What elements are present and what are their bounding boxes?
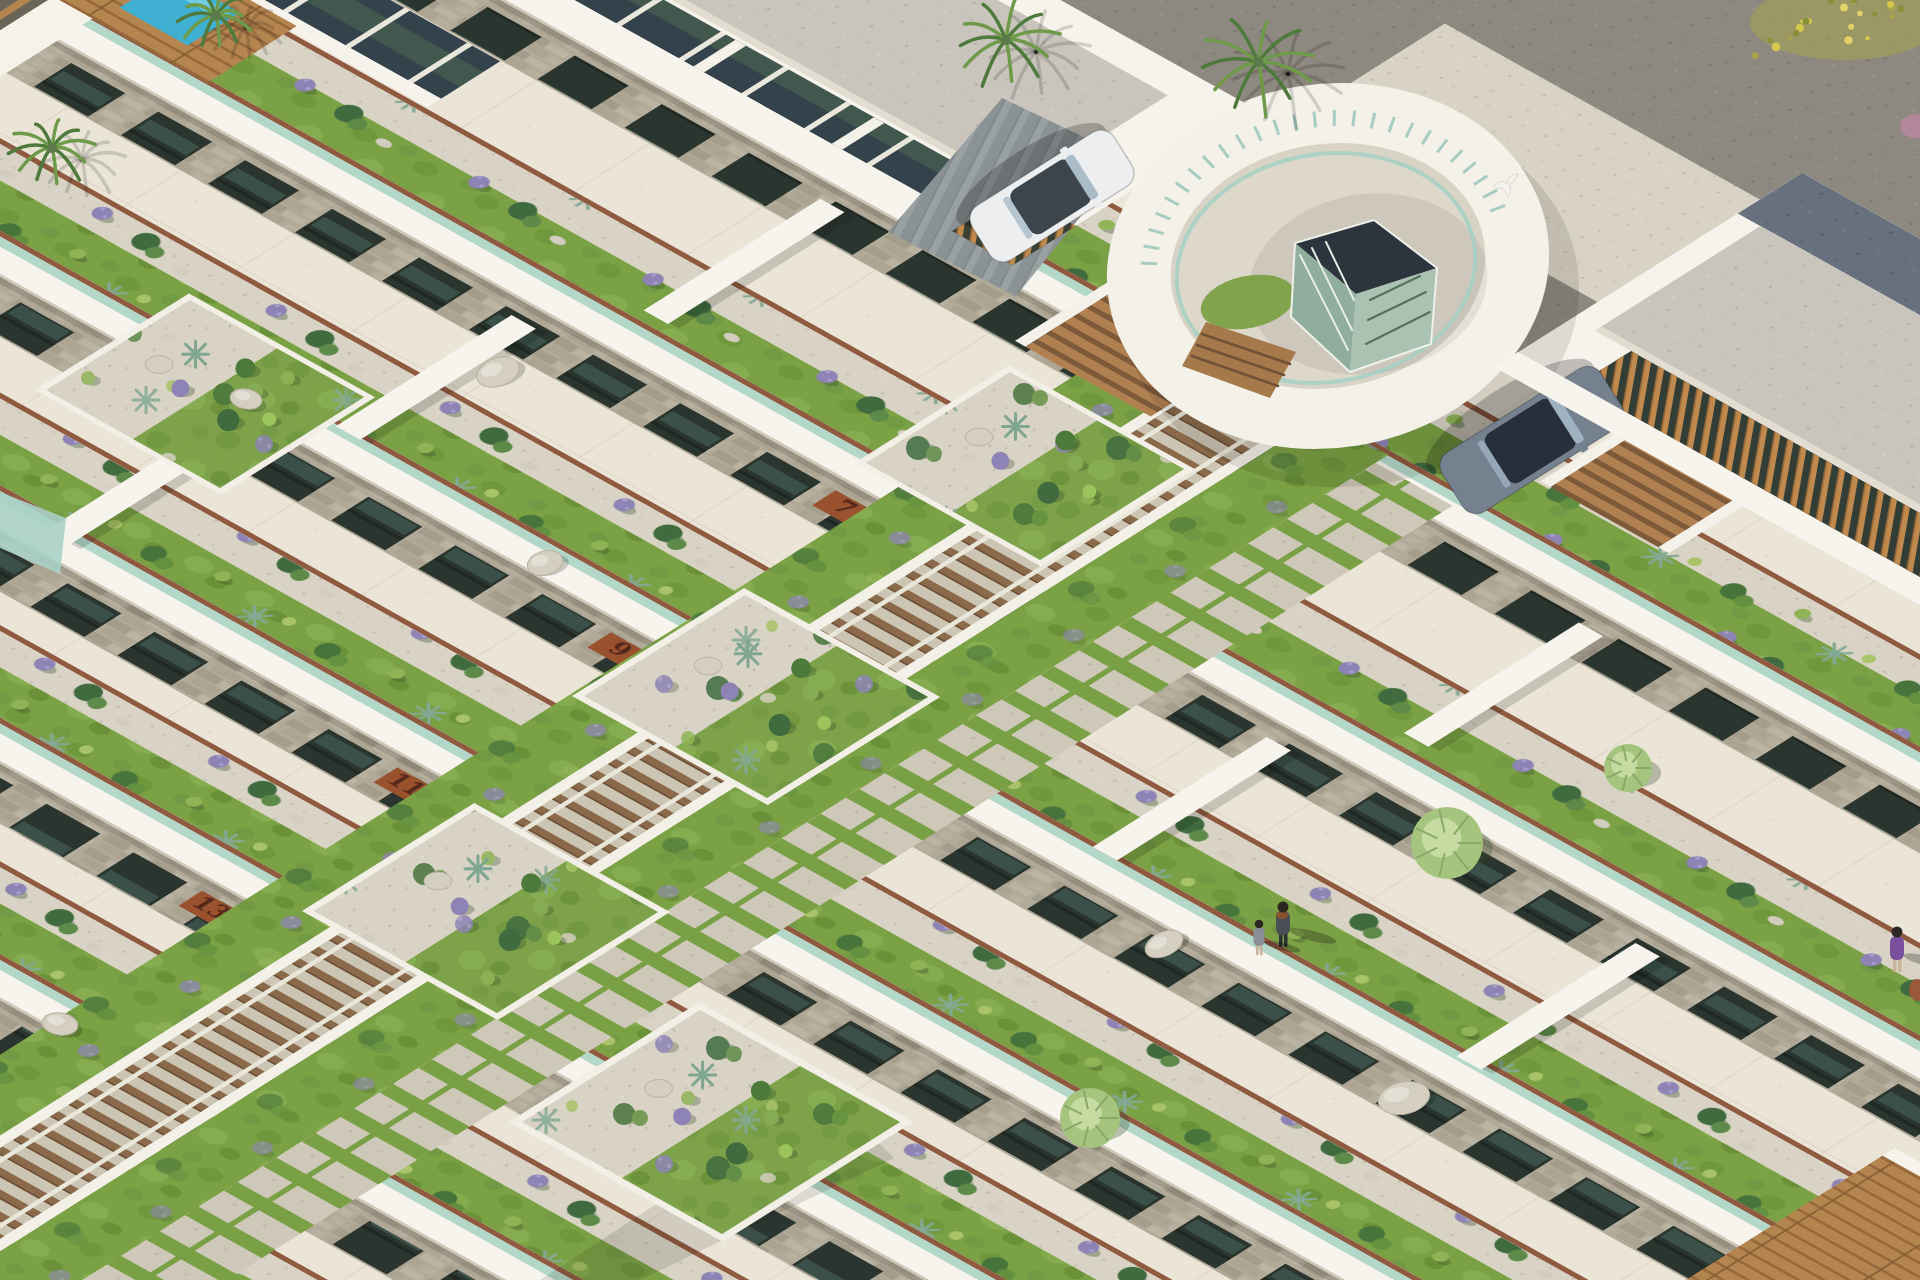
aerial-architectural-render: 5791113: [0, 0, 1920, 1280]
bush: [235, 358, 255, 378]
bush: [751, 1081, 771, 1101]
bush: [171, 379, 189, 397]
planter-rock: [645, 1079, 673, 1097]
bush: [547, 931, 561, 945]
flower-dot: [1872, 12, 1877, 17]
agave-plant: [1003, 413, 1029, 439]
agave-plant: [183, 341, 209, 367]
palm-crown: [1001, 35, 1011, 45]
flower-dot: [1848, 24, 1854, 30]
bush: [262, 412, 276, 426]
bush: [673, 1107, 691, 1125]
agave-plant: [735, 641, 761, 667]
bush: [217, 409, 239, 431]
bush: [1067, 455, 1083, 471]
bush: [1037, 482, 1059, 504]
planter-rock: [694, 657, 722, 675]
bush: [791, 658, 811, 678]
agave-plant: [690, 1062, 716, 1088]
palm-crown: [1253, 57, 1263, 67]
bush: [769, 714, 791, 736]
bush: [721, 682, 739, 700]
flower-dot: [1751, 52, 1758, 59]
bush: [1055, 431, 1075, 451]
flower-dot: [1857, 10, 1863, 16]
person-head: [1892, 927, 1903, 938]
palm-crown: [211, 11, 221, 21]
flower-dot: [1865, 36, 1870, 41]
wildflowers: [1750, 0, 1920, 60]
person-torso: [1890, 936, 1904, 960]
bush: [1082, 485, 1096, 499]
flower-dot: [1840, 4, 1848, 12]
flower-dot: [1898, 6, 1905, 13]
agave-plant: [465, 856, 491, 882]
bush: [991, 452, 1009, 470]
flower-dot: [1772, 43, 1781, 52]
palm-crown: [47, 143, 57, 153]
flower-dot: [1890, 14, 1895, 19]
planter-rock: [424, 872, 452, 890]
flower-dot: [1788, 36, 1793, 41]
flower-dot: [1887, 1, 1894, 8]
bush: [763, 1110, 779, 1126]
flower-dot: [1793, 30, 1799, 36]
flower-dot: [1803, 18, 1810, 25]
person-torso: [1254, 927, 1265, 946]
person-head: [1255, 920, 1264, 929]
flower-dot: [1767, 38, 1773, 44]
bush: [499, 929, 521, 951]
bush: [451, 897, 469, 915]
bush: [521, 873, 541, 893]
person-head: [1278, 902, 1289, 913]
bush: [779, 1144, 793, 1158]
bush: [817, 716, 831, 730]
bush: [726, 1142, 748, 1164]
planter-rock: [145, 356, 173, 374]
flower-dot: [1844, 36, 1852, 44]
screenshot-stage: 5791113: [0, 0, 1920, 1280]
planter-rock: [965, 428, 993, 446]
bush: [803, 685, 819, 701]
bush: [533, 900, 549, 916]
